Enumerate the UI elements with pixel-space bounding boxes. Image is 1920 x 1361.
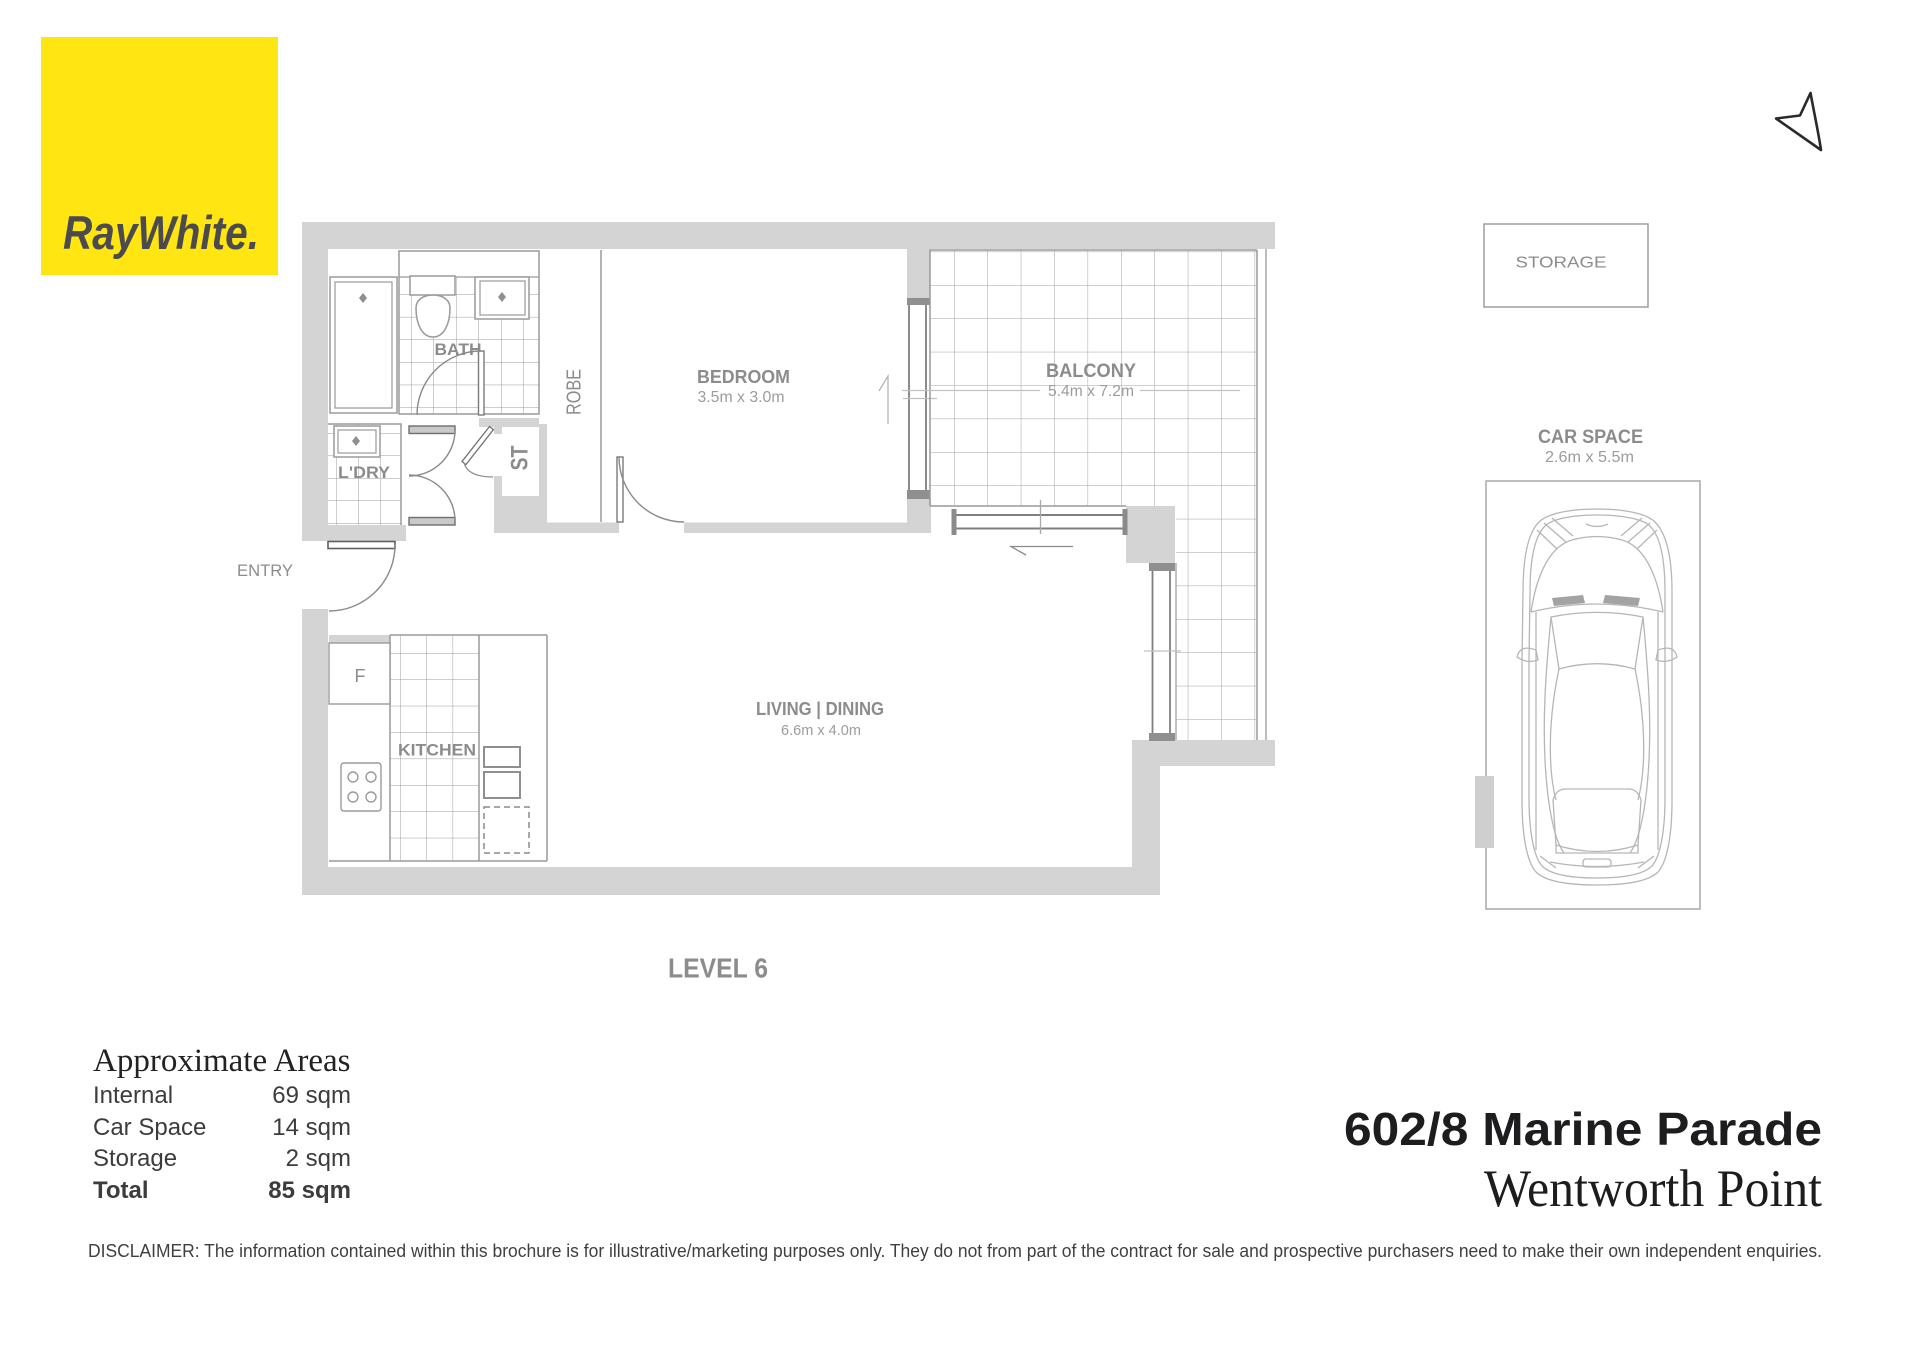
svg-text:LEVEL 6: LEVEL 6 <box>668 953 768 984</box>
svg-text:14 sqm: 14 sqm <box>272 1114 351 1141</box>
svg-text:ST: ST <box>507 445 534 470</box>
svg-text:Wentworth Point: Wentworth Point <box>1484 1160 1822 1218</box>
svg-text:2.6m x 5.5m: 2.6m x 5.5m <box>1545 449 1634 466</box>
svg-text:Approximate Areas: Approximate Areas <box>93 1043 351 1079</box>
svg-text:Total: Total <box>93 1177 149 1204</box>
svg-text:BATH: BATH <box>435 340 482 359</box>
svg-text:F: F <box>355 666 366 686</box>
svg-text:602/8 Marine Parade: 602/8 Marine Parade <box>1344 1103 1822 1155</box>
svg-text:KITCHEN: KITCHEN <box>398 741 476 760</box>
svg-text:RayWhite.: RayWhite. <box>63 206 259 259</box>
svg-text:L'DRY: L'DRY <box>338 463 391 482</box>
svg-text:ENTRY: ENTRY <box>237 561 293 580</box>
svg-text:BEDROOM: BEDROOM <box>697 366 790 387</box>
svg-text:3.5m x 3.0m: 3.5m x 3.0m <box>698 389 785 406</box>
svg-text:LIVING | DINING: LIVING | DINING <box>756 698 884 719</box>
svg-text:69 sqm: 69 sqm <box>272 1082 351 1109</box>
svg-text:Internal: Internal <box>93 1082 173 1109</box>
svg-text:Car Space: Car Space <box>93 1114 206 1141</box>
svg-text:Storage: Storage <box>93 1145 177 1172</box>
svg-text:6.6m x 4.0m: 6.6m x 4.0m <box>781 722 861 739</box>
svg-text:CAR SPACE: CAR SPACE <box>1538 427 1643 448</box>
svg-text:5.4m x 7.2m: 5.4m x 7.2m <box>1048 383 1134 400</box>
svg-text:DISCLAIMER: The information co: DISCLAIMER: The information contained wi… <box>88 1241 1822 1261</box>
svg-text:STORAGE: STORAGE <box>1516 255 1607 272</box>
svg-text:85 sqm: 85 sqm <box>268 1177 351 1204</box>
svg-text:ROBE: ROBE <box>564 369 586 415</box>
svg-text:2 sqm: 2 sqm <box>286 1145 351 1172</box>
svg-text:BALCONY: BALCONY <box>1046 360 1136 382</box>
